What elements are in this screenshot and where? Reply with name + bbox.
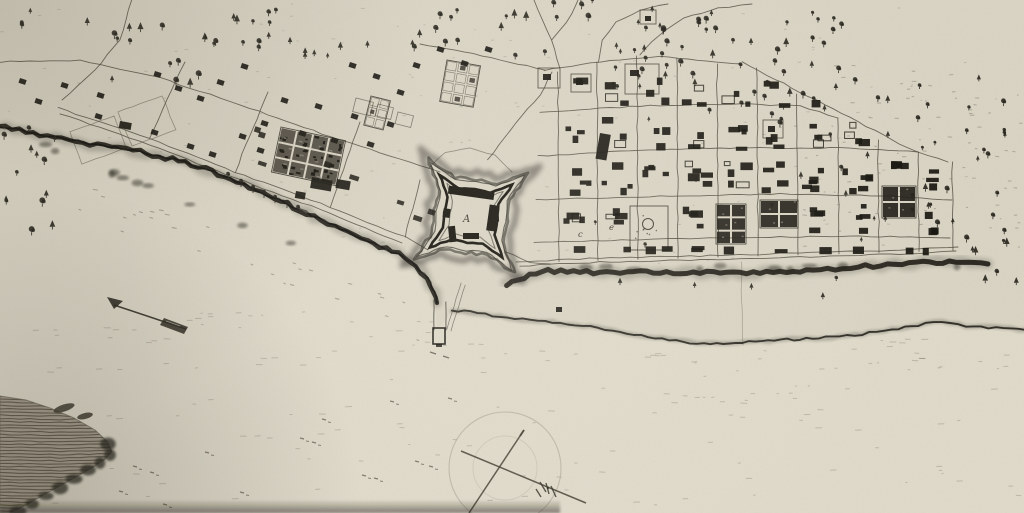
map-canvas: A c e	[0, 0, 1024, 513]
paper-tone-overlays	[0, 0, 1024, 513]
historic-map-engraving: A c e	[0, 0, 1024, 513]
